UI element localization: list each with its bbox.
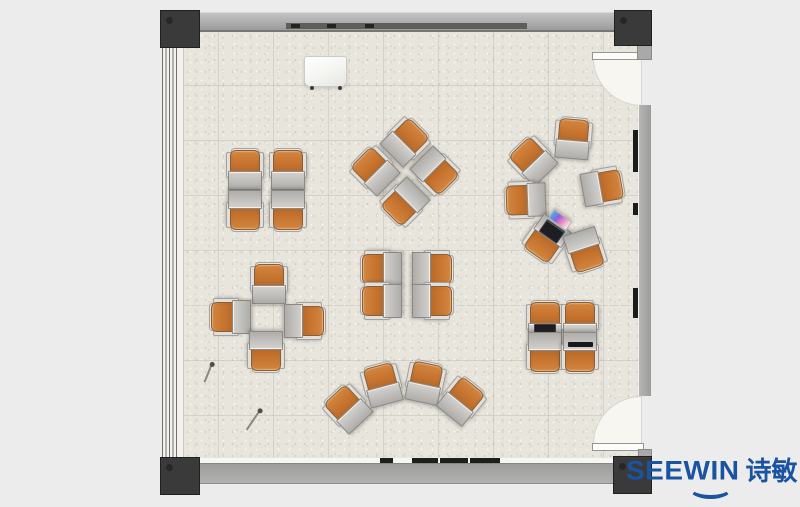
seewin-logo: SEEWIN诗敏 xyxy=(626,451,797,488)
whiteboard xyxy=(304,56,347,87)
desk-chair-unit-right-circle[interactable] xyxy=(504,132,559,187)
desk xyxy=(232,300,251,334)
desk-chair-unit-top-left-quad[interactable] xyxy=(227,148,263,190)
desk-chair-unit-left-cross[interactable] xyxy=(209,299,251,335)
floor-plan-canvas: SEEWIN诗敏 xyxy=(0,0,800,507)
desk xyxy=(554,139,590,161)
desk-chair-unit-right-circle[interactable] xyxy=(561,225,608,276)
column-top-right xyxy=(614,10,652,46)
column-top-left xyxy=(160,10,200,48)
column-bottom-left xyxy=(160,457,200,495)
desk xyxy=(252,285,286,304)
desk xyxy=(249,331,283,350)
desk-chair-unit-center-quad[interactable] xyxy=(360,283,402,319)
desk-chair-unit-left-cross[interactable] xyxy=(251,262,287,304)
whiteboard-foot xyxy=(310,86,314,90)
desk-chair-unit-top-left-quad[interactable] xyxy=(270,148,306,190)
desk-chair-unit-top-left-quad[interactable] xyxy=(227,190,263,232)
tablet xyxy=(568,342,593,347)
desk-chair-unit-center-quad[interactable] xyxy=(412,283,454,319)
desk xyxy=(383,252,402,286)
desk xyxy=(284,304,303,338)
desk-chair-unit-right-circle[interactable] xyxy=(503,181,546,218)
desk-chair-unit-right-circle[interactable] xyxy=(579,166,627,209)
whiteboard-foot xyxy=(338,86,342,90)
desk-chair-unit-left-cross[interactable] xyxy=(248,331,284,373)
desk-chair-unit-left-cross[interactable] xyxy=(284,303,326,339)
desk xyxy=(412,252,431,286)
desk xyxy=(271,190,305,209)
desk-chair-unit-bottom-right-quad[interactable] xyxy=(562,332,598,374)
stick xyxy=(204,364,213,382)
desk xyxy=(228,171,262,190)
logo-text-cn: 诗敏 xyxy=(745,456,797,486)
desk xyxy=(271,171,305,190)
desk xyxy=(412,284,431,318)
desk-chair-unit-bottom-right-quad[interactable] xyxy=(527,332,563,374)
desk xyxy=(383,284,402,318)
logo-smile-arc xyxy=(689,478,732,499)
desk xyxy=(528,332,562,351)
desk xyxy=(228,190,262,209)
desk-chair-unit-right-circle[interactable] xyxy=(553,116,593,161)
furniture-layer xyxy=(0,0,800,507)
stick xyxy=(246,410,261,430)
desk-chair-unit-top-left-quad[interactable] xyxy=(270,190,306,232)
